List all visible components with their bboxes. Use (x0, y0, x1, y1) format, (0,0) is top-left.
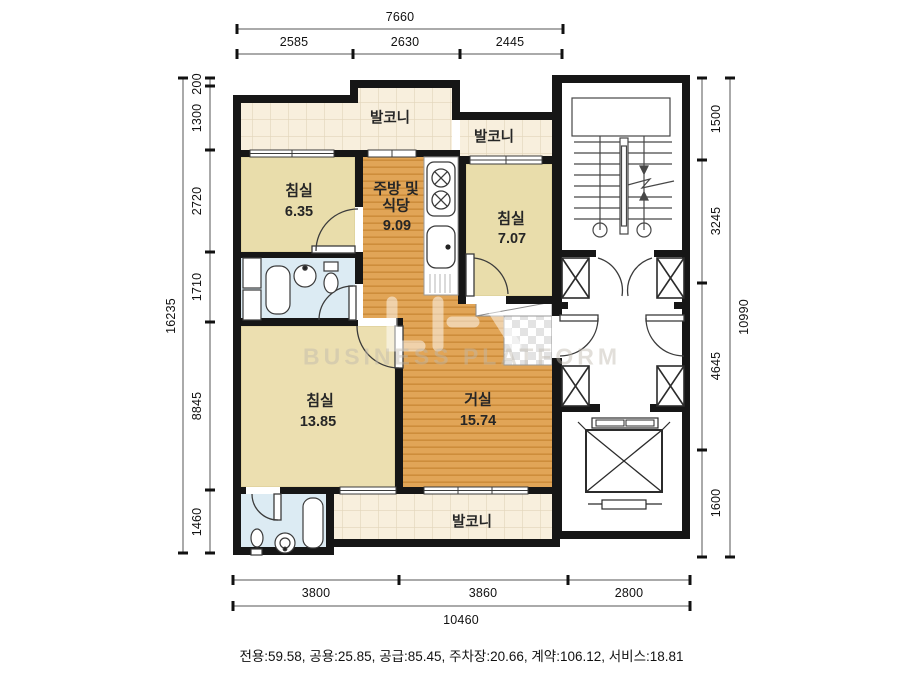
sink (427, 226, 455, 268)
door-leaf-neighbor (646, 315, 684, 321)
dim-bottom-total: 10460 (443, 613, 479, 627)
room-label-bedroom-small: 침실 (285, 180, 313, 201)
door-leaf-bath-upper (349, 286, 356, 320)
toilet-tank-lower (251, 549, 262, 555)
room-label-bedroom-large: 침실 (306, 390, 334, 411)
bathtub-icon (266, 266, 290, 314)
dim-bottom-seg-2: 3860 (469, 586, 498, 600)
dim-ticks-left (178, 77, 215, 555)
toilet-icon-lower (251, 529, 263, 547)
dim-left-seg-6: 1460 (190, 508, 204, 537)
room-label-balcony-bottom: 발코니 (452, 511, 492, 532)
room-label-balcony-top-right: 발코니 (474, 126, 514, 147)
dim-ticks-right (697, 77, 735, 559)
room-area-bedroom-small: 6.35 (285, 204, 313, 220)
dim-top-seg-2: 2630 (391, 35, 420, 49)
dim-top-total: 7660 (386, 10, 415, 24)
column-x-icon (657, 258, 684, 298)
closet-lower (243, 290, 261, 320)
room-area-bedroom-right: 7.07 (498, 231, 526, 247)
door-leaf-bath-lower (274, 494, 281, 520)
room-label-bedroom-right: 침실 (497, 208, 525, 229)
floorplan-canvas: 7660 2585 2630 2445 16235 200 1300 2720 … (0, 0, 923, 676)
dim-bottom-seg-1: 3800 (302, 586, 331, 600)
room-area-living: 15.74 (460, 413, 496, 429)
column-x-icon (657, 366, 684, 406)
dim-top-seg-3: 2445 (496, 35, 525, 49)
dim-right-seg-1: 1500 (709, 105, 723, 134)
stove (427, 162, 455, 216)
door-leaf-bedroom-right (466, 254, 474, 296)
room-area-kitchen: 9.09 (383, 218, 411, 234)
dim-right-seg-4: 1600 (709, 489, 723, 518)
dim-left-seg-3: 2720 (190, 187, 204, 216)
dim-right-total: 10990 (737, 299, 751, 335)
closet-upper (243, 258, 261, 288)
elevator-counterweight (602, 500, 646, 509)
dim-right-seg-2: 3245 (709, 207, 723, 236)
door-leaf-entrance (560, 315, 598, 321)
dim-left-seg-5: 8845 (190, 392, 204, 421)
room-area-bedroom-large: 13.85 (300, 414, 336, 430)
dim-left-total: 16235 (164, 298, 178, 334)
kitchen-unit (424, 157, 458, 295)
balcony-bottom-floor (334, 494, 552, 539)
dim-left-seg-2: 1300 (190, 104, 204, 133)
dim-bottom-seg-3: 2800 (615, 586, 644, 600)
bedroom-right-floor (466, 164, 552, 296)
bathtub-icon-lower (303, 498, 323, 548)
door-leaf-bedroom-small (312, 246, 355, 253)
dim-left-seg-4: 1710 (190, 273, 204, 302)
room-label-balcony-top: 발코니 (370, 107, 410, 128)
room-label-kitchen-line2: 식당 (382, 195, 410, 216)
dim-top-seg-1: 2585 (280, 35, 309, 49)
dim-left-seg-1: 200 (190, 73, 204, 94)
floorplan-drawing (0, 0, 923, 676)
room-label-living: 거실 (464, 389, 492, 410)
area-summary: 전용:59.58, 공용:25.85, 공급:85.45, 주차장:20.66,… (0, 645, 923, 665)
dim-right-seg-3: 4645 (709, 352, 723, 381)
column-x-icon (562, 366, 589, 406)
column-x-icon (562, 258, 589, 298)
toilet-icon (324, 273, 338, 293)
toilet-tank (324, 262, 338, 271)
